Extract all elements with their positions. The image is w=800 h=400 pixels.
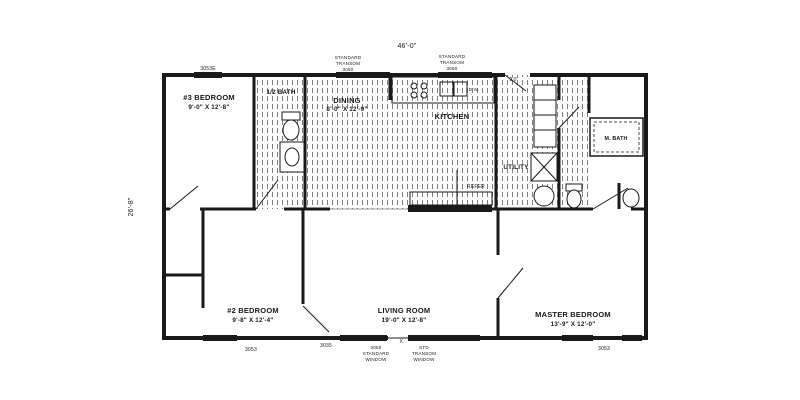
svg-text:TRANSOM: TRANSOM — [440, 60, 464, 65]
room-size-label: 8'-0" X 12'-9" — [326, 106, 367, 113]
room-bedroom2: #2 BEDROOM 9'-8" X 12'-4" — [227, 306, 279, 324]
toilet-icon — [567, 190, 581, 208]
toilet-icon — [283, 120, 299, 140]
room-label: DINING — [333, 96, 360, 105]
water-heater-icon — [534, 186, 554, 206]
svg-text:3050: 3050 — [342, 67, 353, 72]
room-label: MASTER BEDROOM — [535, 310, 611, 319]
room-label: LIVING ROOM — [378, 306, 431, 315]
svg-text:STANDARD: STANDARD — [363, 351, 390, 356]
marriage-mark-label: X. — [399, 339, 404, 345]
room-size-label: 19'-0" X 12'-8" — [382, 317, 427, 324]
dishwasher-label: D.W. — [469, 87, 480, 92]
room-size-label: 9'-0" X 12'-8" — [188, 104, 229, 111]
std-transom-label: STD TRANSOM WINDOW — [412, 345, 436, 362]
svg-text:TRANSOM: TRANSOM — [412, 351, 436, 356]
svg-text:WINDOW: WINDOW — [365, 357, 387, 362]
std-window-label: 3050 STANDARD WINDOW — [363, 345, 390, 362]
room-master-bedroom: MASTER BEDROOM 13'-9" X 12'-0" — [535, 310, 611, 328]
room-kitchen: KITCHEN — [435, 112, 470, 121]
room-label: UTILITY — [503, 164, 529, 171]
room-label: KITCHEN — [435, 112, 470, 121]
svg-text:STD: STD — [419, 345, 429, 350]
room-label: 1/2 BATH — [266, 89, 295, 96]
dim-overall-depth: 26'-8" — [128, 197, 135, 216]
room-living: LIVING ROOM 19'-0" X 12'-8" — [378, 306, 431, 324]
refrigerator-label: REFER — [467, 184, 485, 190]
room-label: #3 BEDROOM — [183, 93, 235, 102]
window-spec-label: 3053 — [598, 346, 610, 352]
svg-text:STANDARD: STANDARD — [439, 54, 466, 59]
room-utility: UTILITY — [503, 164, 529, 171]
rear-door-label: 3'0" — [509, 77, 518, 83]
svg-text:3050: 3050 — [446, 66, 457, 71]
svg-text:STANDARD: STANDARD — [335, 55, 362, 60]
sink-icon — [623, 189, 639, 207]
transom-label-kitchen: STANDARD TRANSOM 3050 — [439, 54, 466, 71]
floor-plan-drawing: 46'-0" 26'-8" #3 BEDROOM 9'-0" X 12'-8" … — [0, 0, 800, 400]
room-size-label: 9'-8" X 12'-4" — [232, 317, 273, 324]
window-spec-label: 3053 — [245, 347, 257, 353]
kitchen-bar-counter — [408, 205, 492, 212]
room-label: M. BATH — [604, 136, 627, 142]
svg-text:WINDOW: WINDOW — [413, 357, 435, 362]
room-label: #2 BEDROOM — [227, 306, 279, 315]
window-spec-label: 3053E — [200, 66, 216, 72]
transom-label-dining: STANDARD TRANSOM 3050 — [335, 55, 362, 72]
room-size-label: 13'-9" X 12'-0" — [551, 321, 596, 328]
room-master-bath: M. BATH — [604, 136, 627, 142]
svg-text:TRANSOM: TRANSOM — [336, 61, 360, 66]
floor-plan-page: 46'-0" 26'-8" #3 BEDROOM 9'-0" X 12'-8" … — [0, 0, 800, 400]
room-bedroom3: #3 BEDROOM 9'-0" X 12'-8" — [183, 93, 235, 111]
room-half-bath: 1/2 BATH — [266, 89, 295, 96]
dim-overall-width: 46'-0" — [397, 43, 416, 50]
door-spec-label: 3035 — [320, 343, 332, 349]
pantry-shelves-icon — [534, 85, 556, 147]
svg-text:3050: 3050 — [370, 345, 381, 350]
